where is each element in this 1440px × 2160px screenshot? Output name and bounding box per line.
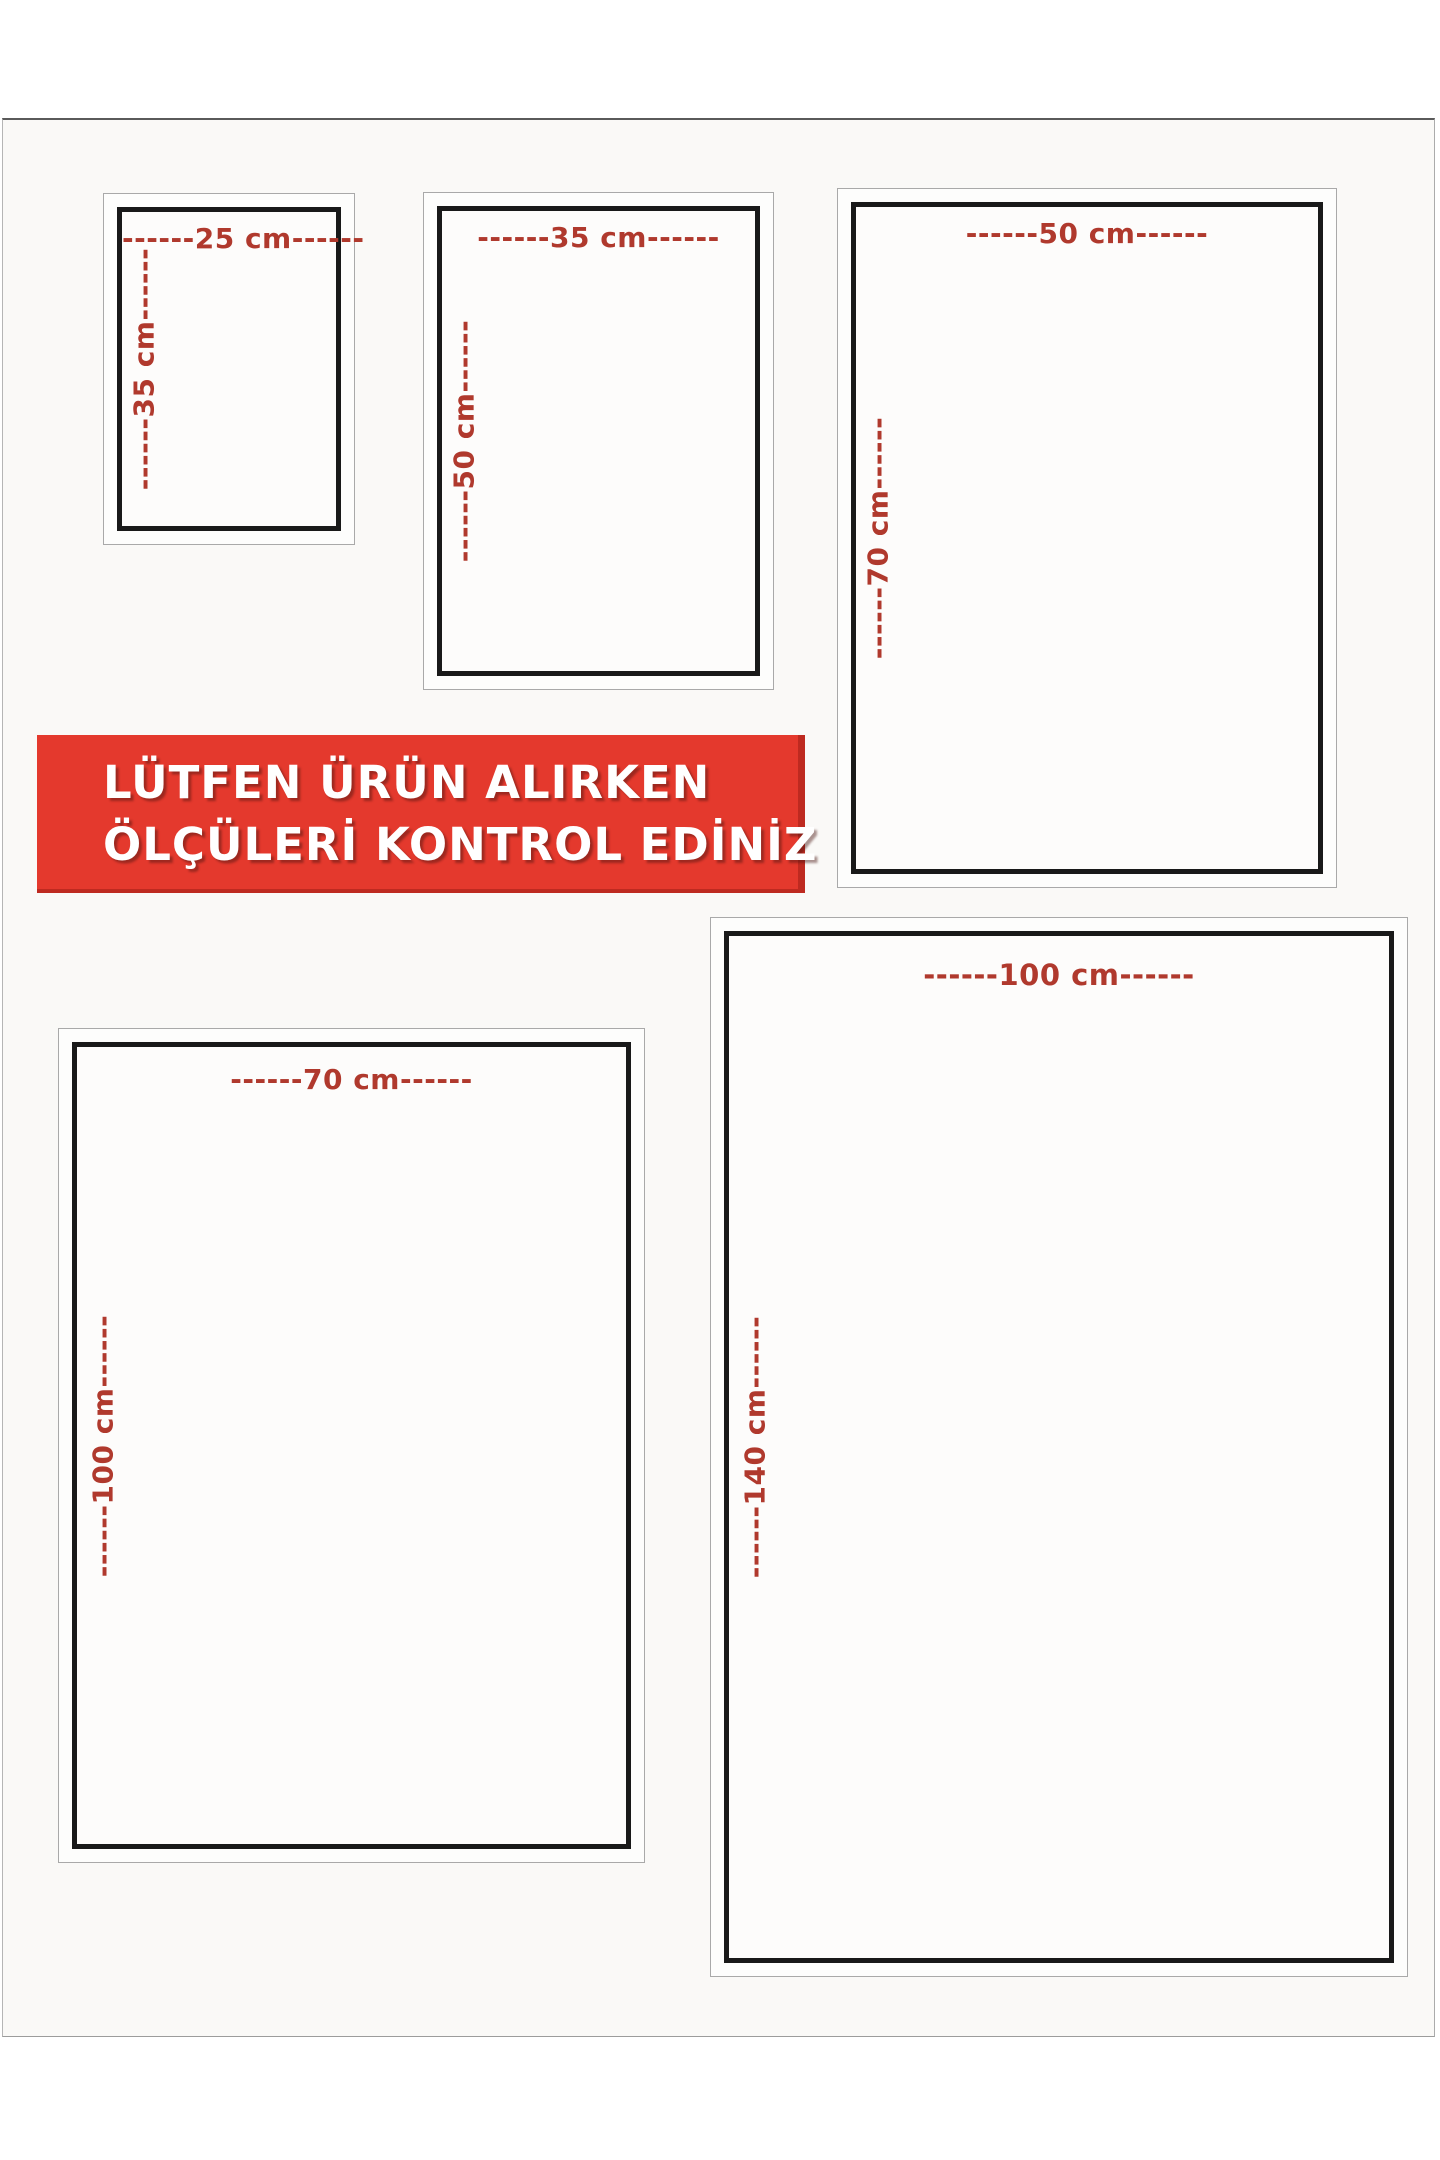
width-dimension-label: ------35 cm------ xyxy=(442,221,755,254)
size-frame-35x50: ------35 cm------ ------50 cm------ xyxy=(423,192,774,690)
frame-border-70x100: ------70 cm------ ------100 cm------ xyxy=(72,1042,631,1849)
size-frame-70x100: ------70 cm------ ------100 cm------ xyxy=(58,1028,645,1863)
height-dimension-label: ------140 cm------ xyxy=(739,1316,772,1578)
size-frame-100x140: ------100 cm------ ------140 cm------ xyxy=(710,917,1408,1977)
width-dimension-label: ------70 cm------ xyxy=(77,1063,626,1096)
frame-border-50x70: ------50 cm------ ------70 cm------ xyxy=(851,202,1323,874)
height-dimension-label: ------70 cm------ xyxy=(862,417,895,659)
frame-border-25x35: ------25 cm------ ------35 cm------ xyxy=(117,207,341,531)
frame-border-100x140: ------100 cm------ ------140 cm------ xyxy=(724,931,1394,1963)
size-frame-50x70: ------50 cm------ ------70 cm------ xyxy=(837,188,1337,888)
size-frame-25x35: ------25 cm------ ------35 cm------ xyxy=(103,193,355,545)
height-dimension-label: ------50 cm------ xyxy=(448,320,481,562)
frame-border-35x50: ------35 cm------ ------50 cm------ xyxy=(437,206,760,676)
width-dimension-label: ------100 cm------ xyxy=(729,958,1389,992)
height-dimension-label: ------100 cm------ xyxy=(87,1314,120,1576)
width-dimension-label: ------50 cm------ xyxy=(856,217,1318,250)
warning-banner: LÜTFEN ÜRÜN ALIRKEN ÖLÇÜLERİ KONTROL EDİ… xyxy=(37,735,805,893)
warning-banner-line-2: ÖLÇÜLERİ KONTROL EDİNİZ xyxy=(103,814,805,876)
size-guide-image: ------25 cm------ ------35 cm------ ----… xyxy=(0,0,1440,2160)
height-dimension-label: ------35 cm------ xyxy=(128,248,161,490)
warning-banner-line-1: LÜTFEN ÜRÜN ALIRKEN xyxy=(103,752,805,814)
